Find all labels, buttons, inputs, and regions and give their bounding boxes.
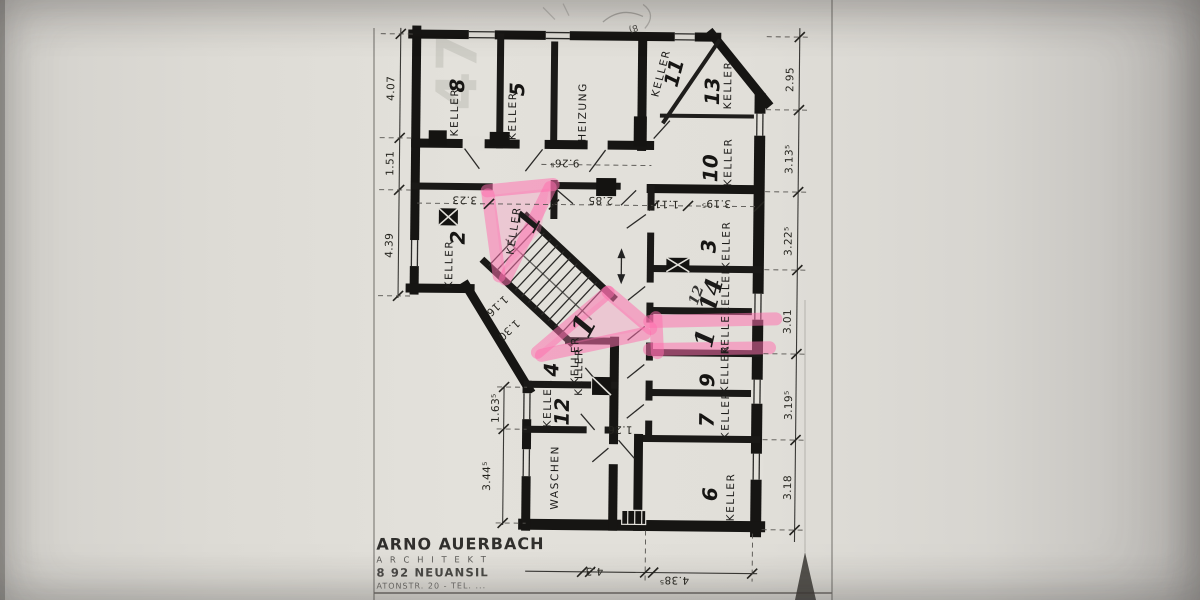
room-heizung-label: HEIZUNG xyxy=(577,82,590,142)
architect-stamp: ARNO AUERBACH A R C H I T E K T 8 92 NEU… xyxy=(376,534,544,591)
room-7-label: KELLER xyxy=(720,391,733,440)
room-keller-6: KELLER 6 xyxy=(698,472,738,521)
room-keller-10: KELLER 10 xyxy=(698,137,735,186)
stamp-city: 8 92 NEUANSIL xyxy=(376,565,489,579)
dim-bottom-4385: 4.38⁵ xyxy=(659,574,689,586)
dim-inner-1115: 1.11⁵ xyxy=(649,198,679,210)
room-3-label: KELLER xyxy=(720,221,733,270)
dim-right-301: 3.01 xyxy=(782,309,794,334)
room-keller-7: KELLER 7 xyxy=(695,390,733,439)
room-2-label: KELLER xyxy=(443,240,456,289)
dim-left-inner-3445: 3.44⁵ xyxy=(481,461,493,491)
dim-bottom-43: 4.3 xyxy=(585,565,603,577)
room-6-number: 6 xyxy=(698,487,722,501)
dim-right-3225: 3.22⁵ xyxy=(782,226,794,256)
dim-inner-323: 3.23 xyxy=(452,193,477,205)
room-10-label: KELLER xyxy=(722,138,735,187)
room-9-number: 9 xyxy=(695,373,719,387)
dim-left-151: 1.51 xyxy=(384,151,396,176)
dim-inner-9265: 9.26⁵ xyxy=(550,156,580,168)
dim-right-3135: 3.13⁵ xyxy=(783,144,795,174)
paper-fold-shadow xyxy=(795,552,816,600)
dim-left-inner-1635: 1.63⁵ xyxy=(490,393,502,423)
room-10-number: 10 xyxy=(698,154,722,182)
dim-inner-126: 1.26 xyxy=(608,423,633,435)
room-keller-13: KELLER 13 xyxy=(700,60,735,109)
dim-right-318: 3.18 xyxy=(782,475,794,500)
exit-steps xyxy=(622,510,646,524)
plan-content: KELLER 8 KELLER 5 HEIZUNG KELLER 11 KELL… xyxy=(375,2,809,595)
scanned-floor-plan-photo: KELLER 8 KELLER 5 HEIZUNG KELLER 11 KELL… xyxy=(0,0,1200,600)
room-5-number: 5 xyxy=(505,82,529,96)
direction-arrow xyxy=(617,248,625,284)
room-4-number: 4 xyxy=(539,362,563,377)
floor-plan-drawing: KELLER 8 KELLER 5 HEIZUNG KELLER 11 KELL… xyxy=(0,0,1200,600)
room-9-label: KELLER xyxy=(719,345,732,394)
room-keller-5: KELLER 5 xyxy=(505,82,530,140)
room-2-number: 2 xyxy=(446,230,470,244)
room-4-label: KELLER xyxy=(569,336,582,385)
room-6-label: KELLER xyxy=(725,473,738,522)
room-heizung: HEIZUNG xyxy=(577,82,590,142)
dim-right-295: 2.95 xyxy=(784,67,796,92)
room-3-number: 3 xyxy=(696,239,720,253)
room-7-number: 7 xyxy=(695,413,719,427)
dim-inner-3195: 3.19⁵ xyxy=(701,197,731,209)
stamp-street: ATONSTR. 20 - TEL. ... xyxy=(376,581,486,590)
dim-left-439: 4.39 xyxy=(383,233,395,258)
stamp-name: ARNO AUERBACH xyxy=(376,534,544,554)
dim-left-407: 4.07 xyxy=(385,76,397,101)
room-waschen: WASCHEN xyxy=(549,445,562,510)
room-waschen-label: WASCHEN xyxy=(549,445,562,510)
dim-inner-285: 2.85 xyxy=(588,194,613,206)
room-keller-3: KELLER 3 xyxy=(696,220,733,269)
room-13-number: 13 xyxy=(700,77,724,105)
faint-pencil-numeral: 47 xyxy=(425,32,491,111)
photo-left-edge xyxy=(0,0,5,600)
dim-right-3195: 3.19⁵ xyxy=(783,390,795,420)
room-5-label: KELLER xyxy=(507,91,520,140)
stamp-title: A R C H I T E K T xyxy=(376,555,488,565)
room-12-number: 12 xyxy=(550,398,574,426)
room-keller-2: KELLER 2 xyxy=(443,230,470,288)
